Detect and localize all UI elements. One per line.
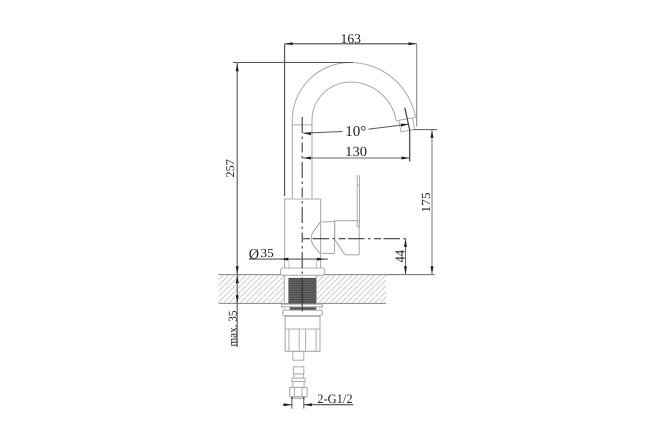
svg-text:257: 257 [223,159,237,177]
svg-text:10°: 10° [345,124,366,140]
svg-text:2-G1/2: 2-G1/2 [317,392,353,406]
svg-text:44: 44 [393,250,408,263]
svg-text:130: 130 [345,145,367,160]
svg-text:163: 163 [341,31,362,46]
svg-text:max. 35: max. 35 [225,310,239,346]
svg-text:175: 175 [419,192,433,212]
svg-text:Ø: Ø [249,246,259,262]
svg-text:35: 35 [260,246,273,260]
